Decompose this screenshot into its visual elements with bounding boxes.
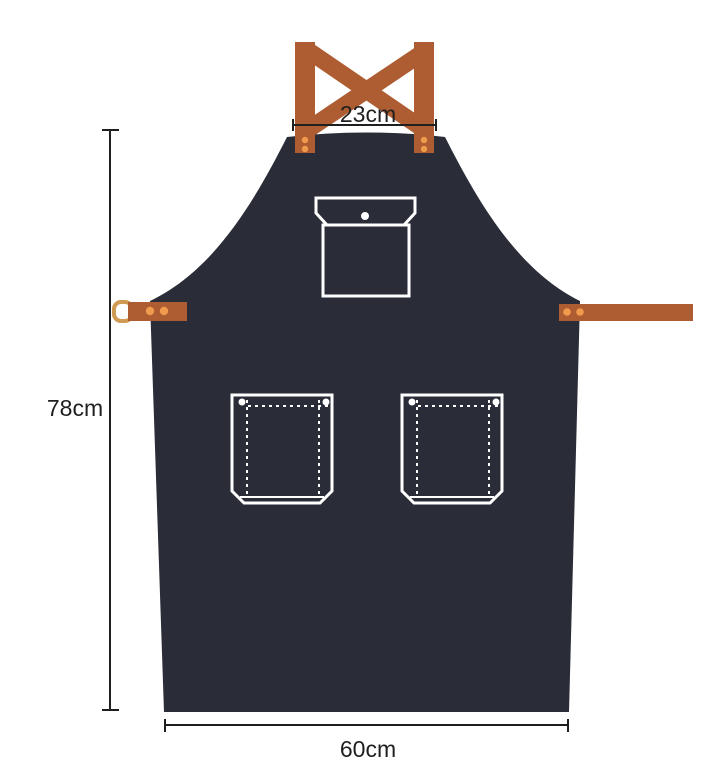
waist-strap-left-group <box>114 302 187 321</box>
rivet <box>421 146 427 152</box>
neck-strap-right <box>414 42 434 153</box>
waist-strap-left <box>128 302 187 321</box>
neck-strap-left <box>295 42 315 153</box>
rivet <box>302 137 308 143</box>
chest-pocket-button <box>361 212 369 220</box>
pocket-rivet <box>493 399 500 406</box>
rivet <box>421 137 427 143</box>
waist-strap-right-group <box>559 304 693 321</box>
pocket-rivet <box>409 399 416 406</box>
rivet <box>576 308 584 316</box>
apron-figure: 23cm 78cm 60cm <box>0 0 709 774</box>
apron-dimension-diagram: 23cm 78cm 60cm <box>0 0 709 774</box>
rivet <box>146 307 154 315</box>
rivet <box>302 146 308 152</box>
body-height-dimension: 78cm <box>47 130 119 710</box>
rivet <box>563 308 571 316</box>
rivet <box>160 307 168 315</box>
body-height-label: 78cm <box>47 395 103 421</box>
pocket-rivet <box>323 399 330 406</box>
neck-width-label: 23cm <box>340 101 396 127</box>
bottom-width-label: 60cm <box>340 736 396 762</box>
bottom-width-dimension: 60cm <box>165 719 568 762</box>
pocket-rivet <box>239 399 246 406</box>
